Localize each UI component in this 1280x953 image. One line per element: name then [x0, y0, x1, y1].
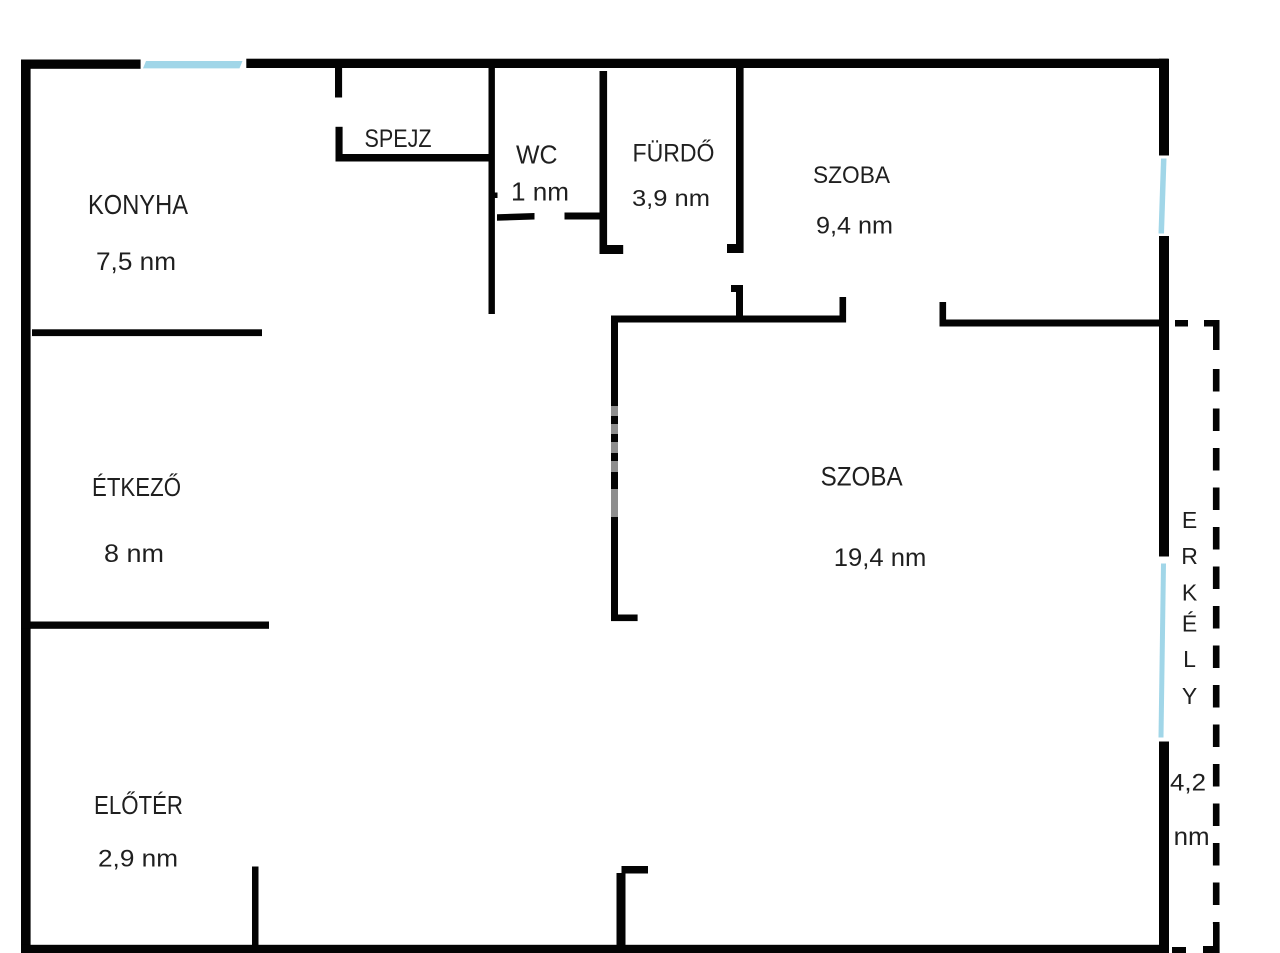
svg-text:3,9 nm: 3,9 nm: [632, 185, 710, 211]
svg-text:É: É: [1182, 611, 1197, 637]
svg-text:K: K: [1182, 580, 1198, 606]
svg-text:7,5 nm: 7,5 nm: [96, 248, 176, 276]
svg-text:WC: WC: [516, 140, 558, 170]
svg-text:2,9 nm: 2,9 nm: [98, 846, 178, 873]
svg-text:Y: Y: [1182, 683, 1197, 709]
svg-text:SZOBA: SZOBA: [821, 462, 903, 492]
svg-text:E: E: [1182, 507, 1197, 533]
svg-text:SPEJZ: SPEJZ: [365, 125, 432, 153]
svg-text:nm: nm: [1174, 823, 1210, 851]
svg-text:L: L: [1183, 646, 1196, 672]
svg-text:4,2: 4,2: [1170, 770, 1206, 797]
svg-text:FÜRDŐ: FÜRDŐ: [633, 139, 715, 168]
svg-text:1 nm: 1 nm: [511, 177, 569, 207]
svg-text:KONYHA: KONYHA: [88, 189, 188, 220]
svg-text:ÉTKEZŐ: ÉTKEZŐ: [92, 472, 181, 502]
svg-text:SZOBA: SZOBA: [813, 162, 890, 189]
svg-text:9,4 nm: 9,4 nm: [816, 213, 893, 240]
svg-text:8 nm: 8 nm: [104, 540, 164, 568]
svg-text:R: R: [1181, 543, 1198, 569]
svg-text:19,4 nm: 19,4 nm: [834, 544, 927, 572]
svg-text:ELŐTÉR: ELŐTÉR: [94, 790, 183, 820]
